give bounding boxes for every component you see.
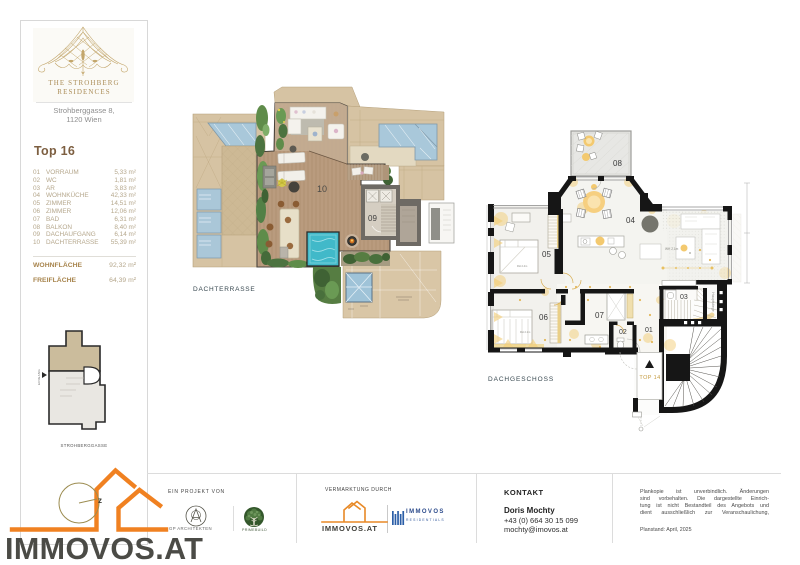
svg-text:RH 2.1m: RH 2.1m — [520, 330, 530, 334]
svg-text:09: 09 — [368, 214, 377, 223]
svg-text:WH 2.1m: WH 2.1m — [665, 247, 679, 251]
svg-text:DACHGESCHOSS: DACHGESCHOSS — [488, 376, 554, 383]
svg-text:Hauptstiege: Hauptstiege — [711, 292, 715, 311]
svg-text:TOP 14: TOP 14 — [639, 375, 660, 381]
svg-text:02: 02 — [619, 329, 627, 336]
svg-text:01: 01 — [645, 327, 653, 334]
svg-text:RH 2.4m: RH 2.4m — [517, 264, 527, 268]
svg-text:07: 07 — [595, 311, 604, 320]
svg-text:10: 10 — [317, 184, 327, 194]
svg-text:03: 03 — [680, 294, 688, 301]
svg-text:05: 05 — [542, 250, 551, 259]
svg-text:EINGANG: EINGANG — [37, 369, 41, 385]
svg-text:04: 04 — [626, 216, 635, 225]
svg-text:DACHTERRASSE: DACHTERRASSE — [193, 286, 255, 293]
svg-text:08: 08 — [613, 159, 622, 168]
svg-text:06: 06 — [539, 313, 548, 322]
svg-text:z: z — [98, 496, 102, 505]
